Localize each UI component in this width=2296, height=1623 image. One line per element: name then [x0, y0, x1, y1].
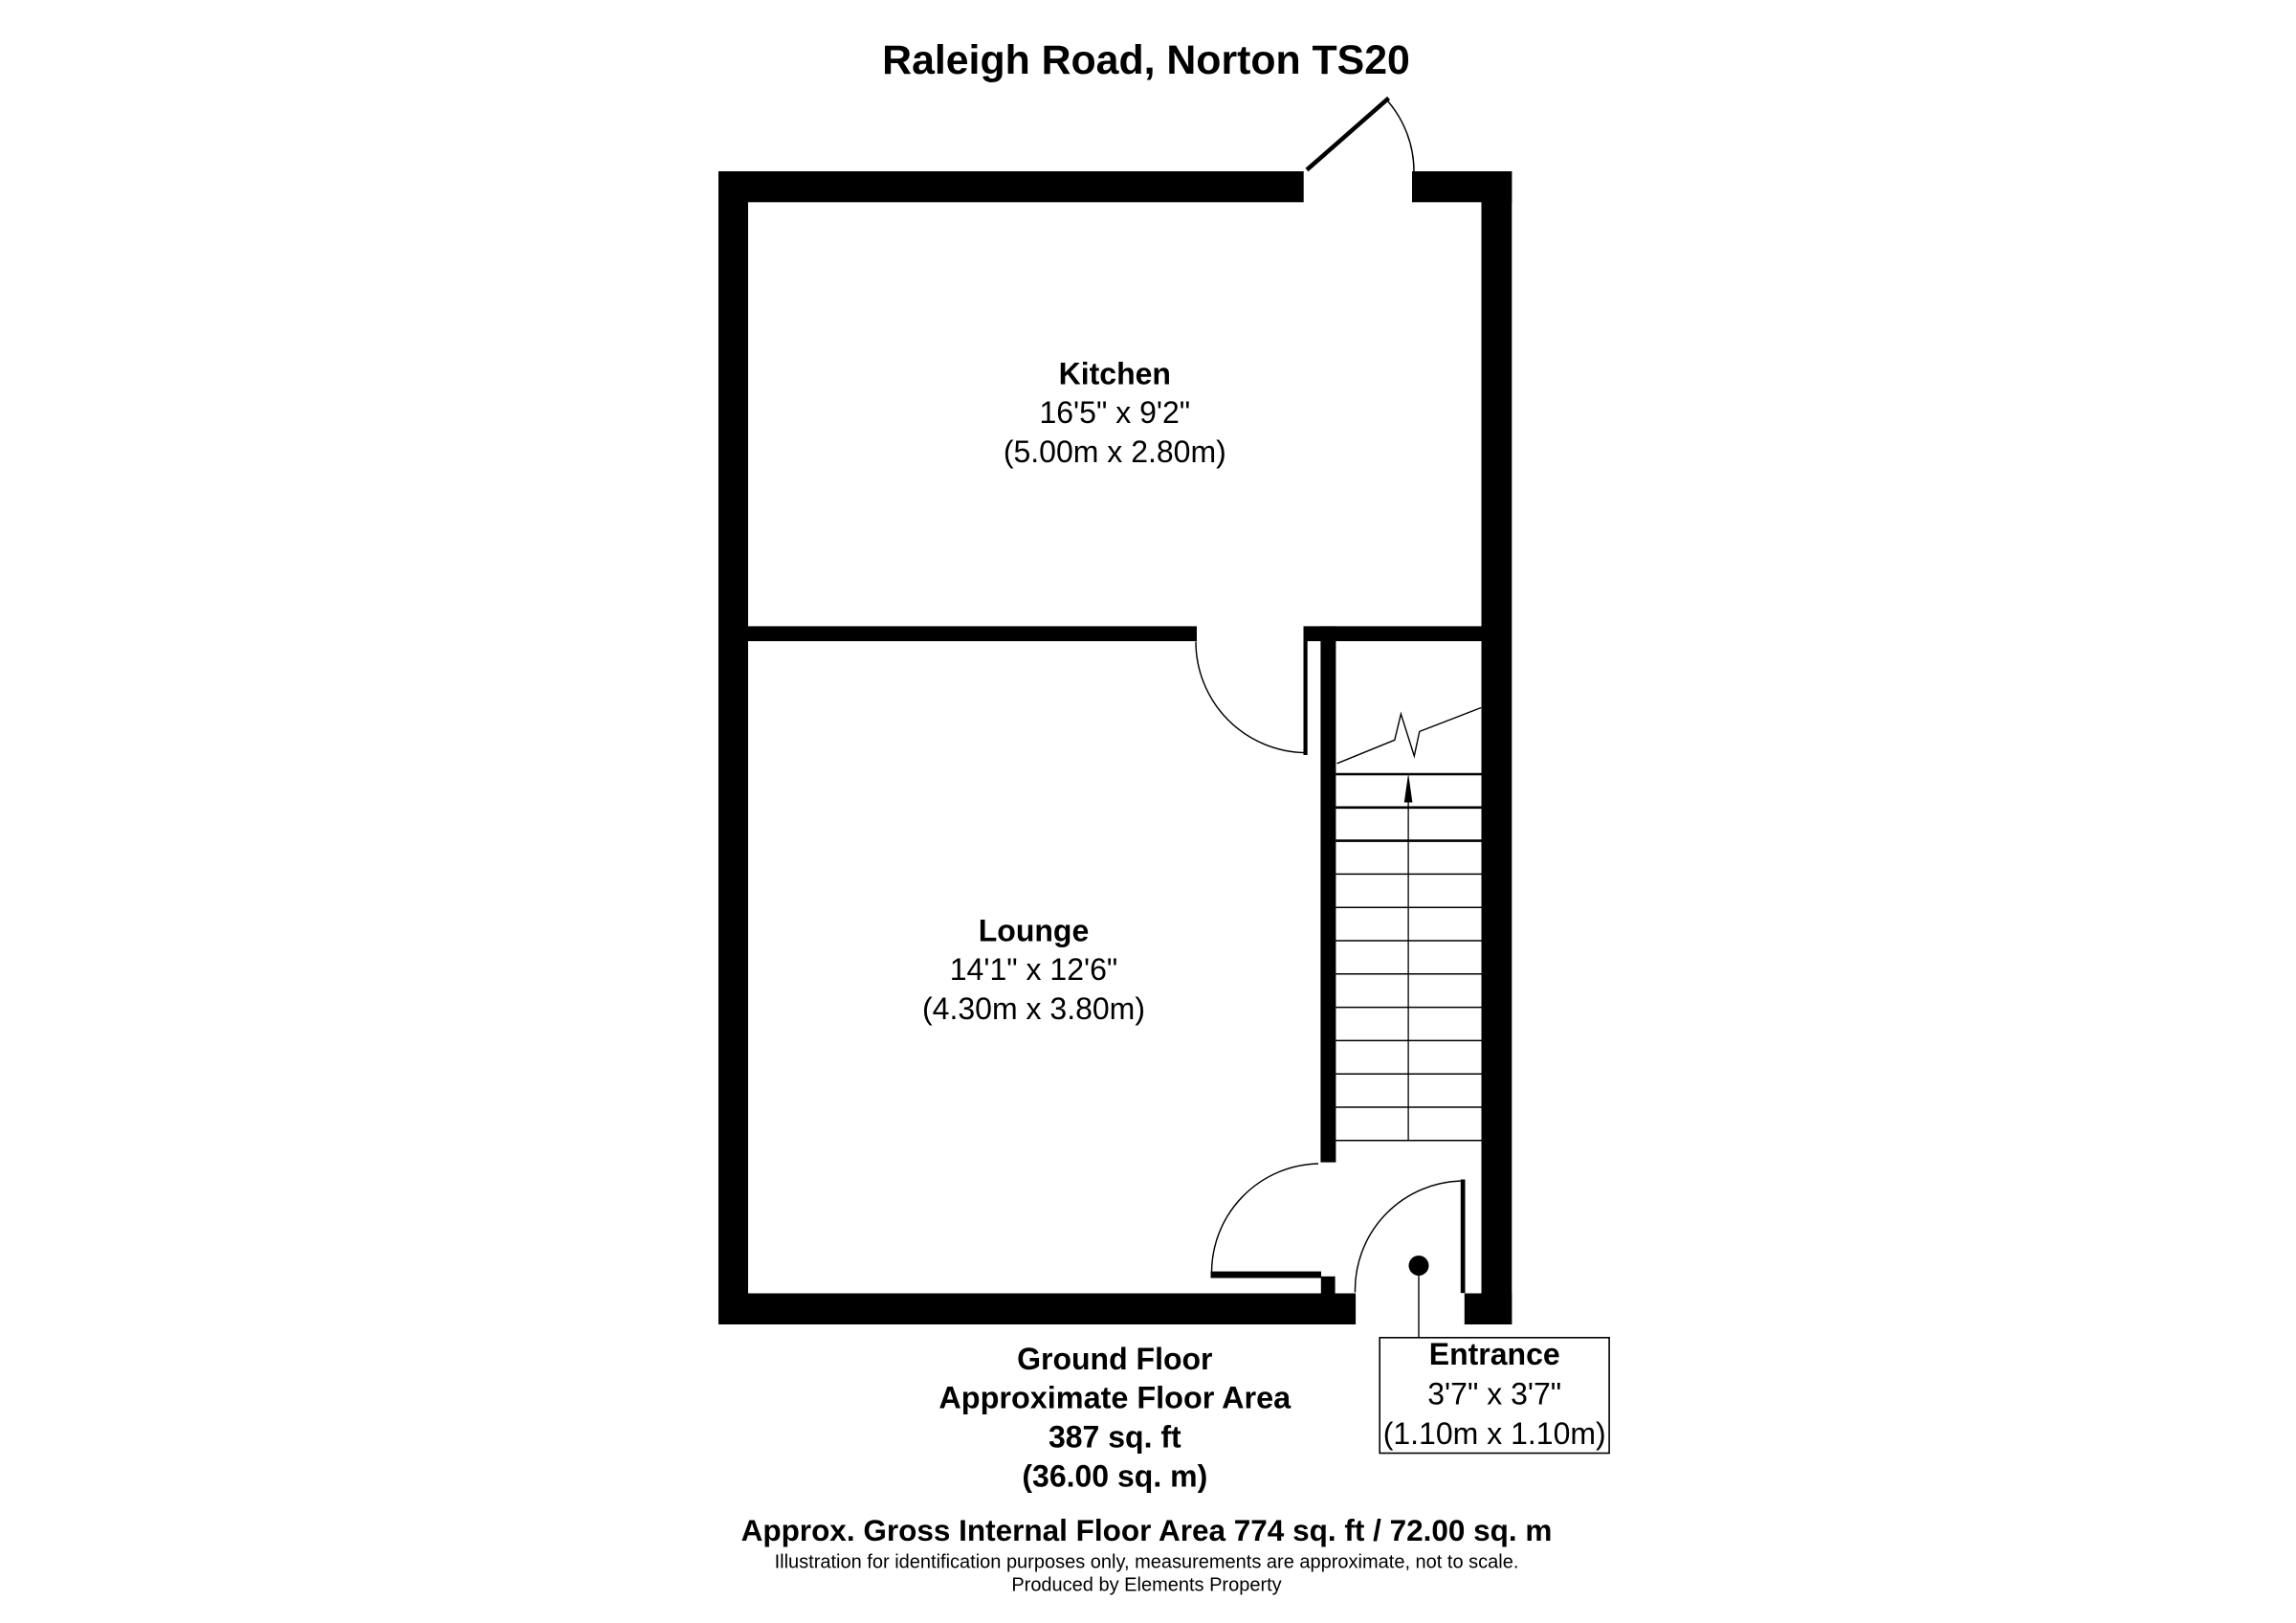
svg-text:(4.30m x 3.80m): (4.30m x 3.80m): [922, 991, 1145, 1026]
svg-text:Ground Floor: Ground Floor: [1017, 1342, 1212, 1376]
svg-text:Illustration for identificatio: Illustration for identification purposes…: [775, 1551, 1519, 1572]
svg-text:Kitchen: Kitchen: [1059, 357, 1171, 391]
svg-text:Lounge: Lounge: [979, 914, 1090, 948]
svg-text:387 sq. ft: 387 sq. ft: [1049, 1420, 1181, 1455]
svg-text:Approx. Gross Internal Floor A: Approx. Gross Internal Floor Area 774 sq…: [741, 1513, 1553, 1547]
svg-text:(1.10m x 1.10m): (1.10m x 1.10m): [1383, 1416, 1606, 1451]
svg-text:(5.00m x 2.80m): (5.00m x 2.80m): [1004, 434, 1226, 469]
svg-text:16'5" x 9'2": 16'5" x 9'2": [1039, 395, 1190, 430]
svg-text:3'7" x 3'7": 3'7" x 3'7": [1427, 1376, 1561, 1411]
svg-text:Entrance: Entrance: [1429, 1337, 1560, 1371]
svg-text:Raleigh Road, Norton TS20: Raleigh Road, Norton TS20: [882, 37, 1410, 83]
svg-text:Produced by Elements Property: Produced by Elements Property: [1011, 1574, 1281, 1595]
svg-text:(36.00 sq. m): (36.00 sq. m): [1022, 1459, 1207, 1494]
svg-text:Approximate Floor Area: Approximate Floor Area: [938, 1381, 1291, 1415]
svg-text:14'1" x 12'6": 14'1" x 12'6": [950, 952, 1118, 987]
